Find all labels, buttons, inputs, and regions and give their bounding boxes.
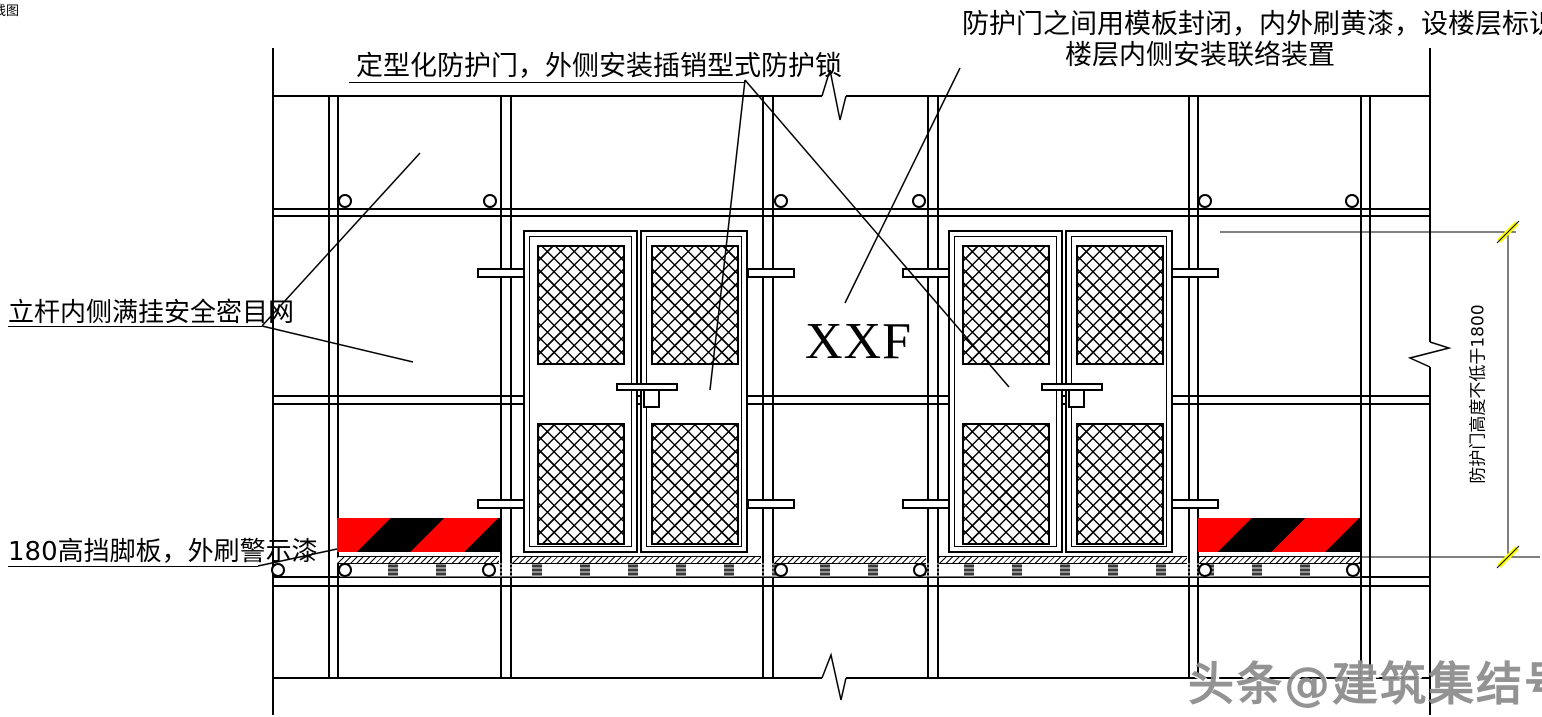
ledger-line: [272, 403, 1429, 405]
scaffold-post: [1197, 95, 1199, 677]
door-mesh-panel: [651, 423, 739, 545]
roller-circle: [1198, 563, 1212, 577]
toeboard-label: 180高挡脚板，外刷警示漆: [8, 531, 318, 568]
door-mesh-panel: [651, 245, 739, 365]
cad-drawing-protective-door-elevation: 线图 定型化防护门，外侧安装插销型式防护锁 防护门之间用模板封闭，内外刷黄漆，设…: [0, 0, 1542, 717]
roller-circle: [913, 563, 927, 577]
door-mesh-panel: [537, 245, 625, 365]
roller-circle: [774, 563, 788, 577]
ledger-line: [272, 585, 1429, 587]
net-label: 立杆内侧满挂安全密目网: [8, 292, 294, 329]
coupler-circle: [483, 194, 497, 208]
door-leaf: [523, 230, 638, 553]
center-mark-xxf: XXF: [805, 312, 912, 371]
toe-board-left: [337, 518, 500, 552]
break-symbol-bottom: [822, 655, 846, 700]
rail-bar: [1171, 499, 1219, 509]
door-mesh-panel: [1076, 245, 1164, 365]
scaffold-post: [500, 95, 502, 677]
bottom-chord: [272, 677, 822, 679]
door-label: 定型化防护门，外侧安装插销型式防护锁: [356, 44, 842, 83]
ledger-line: [272, 395, 1429, 397]
coupler-circle: [912, 194, 926, 208]
scaffold-post-right: [1429, 48, 1431, 342]
top-chord: [272, 95, 822, 97]
door-mesh-panel: [962, 423, 1050, 545]
door-handle-stem: [1068, 389, 1085, 408]
watermark-text: 头条@建筑集结号: [1188, 648, 1542, 714]
rail-bar: [902, 268, 950, 278]
ledger-line: [272, 208, 1429, 210]
scaffold-post: [772, 95, 774, 677]
scaffold-post: [1188, 95, 1190, 677]
coupler-circle: [1198, 194, 1212, 208]
toe-board-right: [1198, 518, 1360, 552]
coupler-circle: [774, 194, 788, 208]
rail-bar: [747, 499, 795, 509]
roller-circle: [338, 563, 352, 577]
formwork-label-line2: 楼层内侧安装联络装置: [962, 33, 1438, 72]
scaffold-post: [328, 95, 330, 677]
leader-and-dimension-overlay: [0, 0, 1542, 717]
walkway-plank: [1199, 556, 1360, 564]
rail-bar: [747, 268, 795, 278]
walkway-plank: [337, 556, 499, 564]
dimension-tick: [1499, 548, 1517, 566]
break-symbol-right: [1410, 342, 1449, 367]
roller-circle: [482, 563, 496, 577]
scaffold-post: [1369, 95, 1371, 677]
door-leaf: [948, 230, 1063, 553]
scaffold-post-left: [272, 48, 274, 715]
coupler-circle: [338, 194, 352, 208]
dimension-tick: [1499, 223, 1517, 241]
rail-bar: [1171, 268, 1219, 278]
door-mesh-panel: [962, 245, 1050, 365]
top-chord: [846, 95, 1429, 97]
scaffold-post: [1360, 95, 1362, 677]
rail-bar: [477, 499, 525, 509]
door-mesh-panel: [1076, 423, 1164, 545]
door-mesh-panel: [537, 423, 625, 545]
scaffold-post: [937, 95, 939, 677]
walkway-plank: [774, 556, 926, 564]
dimension-note: 防护门高度不低于1800: [1464, 304, 1489, 483]
walkway-plank: [512, 556, 761, 564]
coupler-circle: [1345, 194, 1359, 208]
corner-text: 线图: [0, 0, 19, 19]
scaffold-post: [337, 95, 339, 677]
scaffold-post: [510, 95, 512, 677]
dimension-tick-line: [1497, 546, 1519, 568]
walkway-plank: [939, 556, 1187, 564]
rail-bar: [902, 499, 950, 509]
dimension-tick-line: [1497, 221, 1519, 243]
roller-circle: [1346, 563, 1360, 577]
scaffold-post: [762, 95, 764, 677]
scaffold-post: [927, 95, 929, 677]
rail-bar: [477, 268, 525, 278]
door-handle-stem: [643, 389, 660, 408]
ledger-line: [272, 215, 1429, 217]
